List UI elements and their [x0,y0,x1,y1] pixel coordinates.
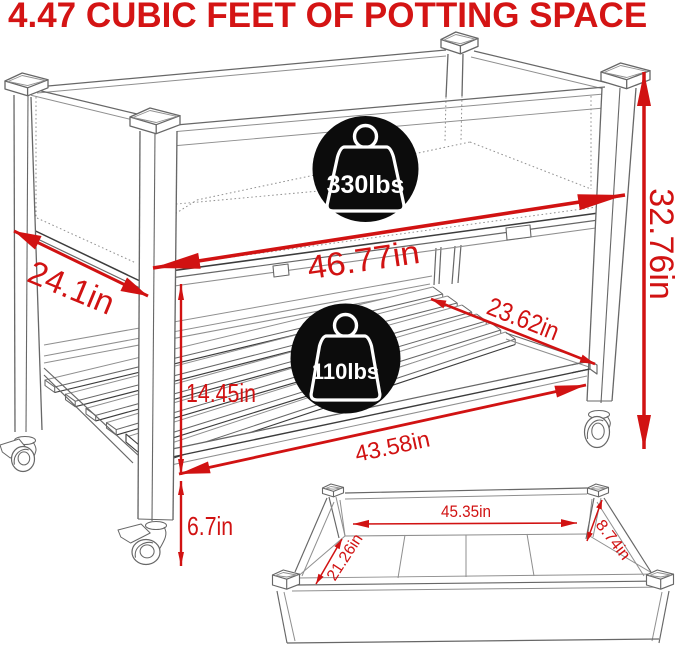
svg-text:110lbs: 110lbs [312,359,379,384]
svg-text:6.7in: 6.7in [187,511,233,541]
svg-text:14.45in: 14.45in [186,378,256,408]
svg-text:43.58in: 43.58in [352,425,432,466]
svg-text:330lbs: 330lbs [327,171,405,199]
svg-text:32.76in: 32.76in [642,188,679,300]
svg-text:45.35in: 45.35in [441,502,491,521]
